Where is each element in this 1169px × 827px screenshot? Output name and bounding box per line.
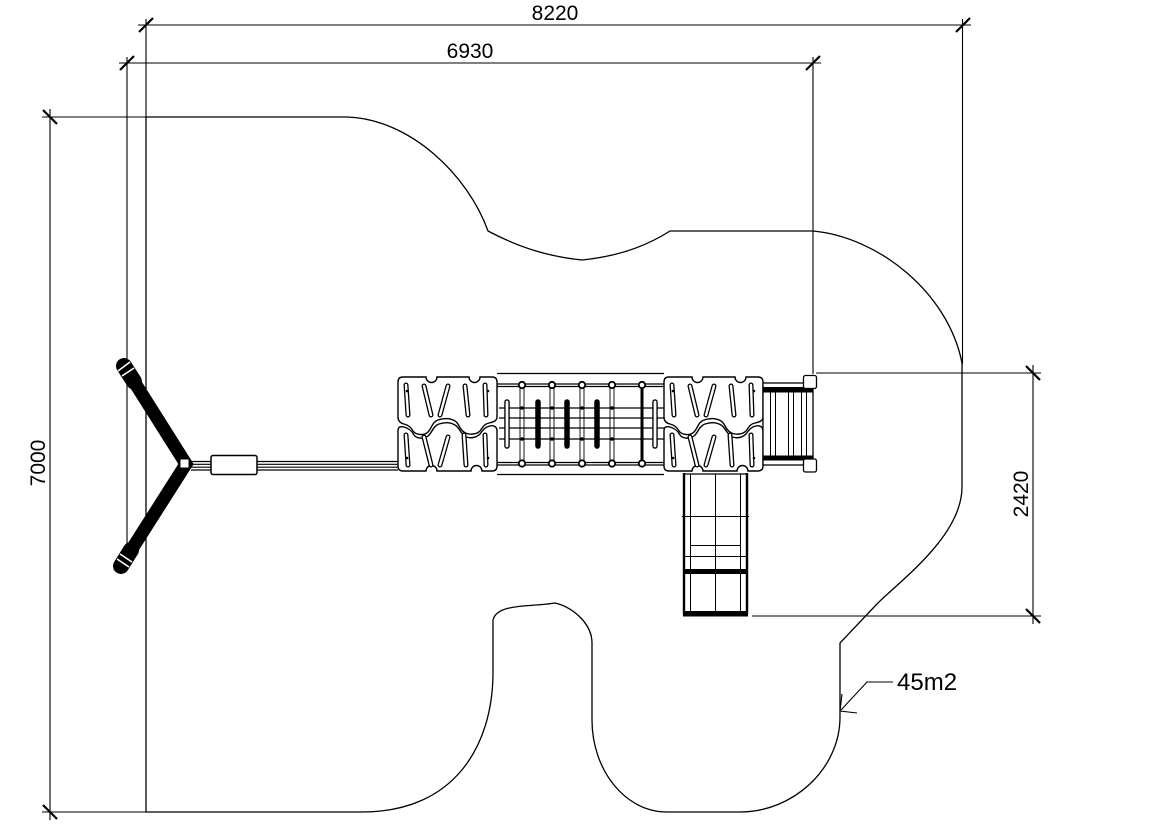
climbing-panel-unit-right (664, 377, 763, 471)
area-label: 45m2 (897, 669, 957, 696)
dimension-label-equipment-width: 6930 (447, 40, 494, 63)
dimension-label-overall-depth: 7000 (27, 440, 50, 487)
climbing-panel-unit-left (398, 377, 497, 471)
platform-deck (763, 376, 817, 473)
swing-beam (191, 456, 398, 475)
dimension-label-overall-width: 8220 (532, 2, 579, 25)
dimension-equipment-width: 6930 (119, 40, 821, 70)
swing-boom (117, 362, 189, 567)
leader-arrowhead-icon (840, 694, 857, 713)
playground-plan-svg: 8220 6930 7000 2420 45m2 (0, 0, 1169, 827)
dimension-slide-zone-depth: 2420 (1010, 365, 1040, 624)
plan-drawing-canvas: 8220 6930 7000 2420 45m2 (0, 0, 1169, 827)
deck-corner-tab (804, 376, 817, 389)
slide-crossbar (685, 569, 746, 574)
area-annotation: 45m2 (840, 669, 957, 713)
leader-line (841, 682, 893, 710)
playground-equipment (117, 362, 817, 617)
slide-end-bar (683, 611, 748, 617)
boom-apex-post (181, 460, 189, 468)
beam-sleeve (211, 456, 257, 475)
slide (682, 473, 749, 617)
extension-lines (42, 19, 1041, 812)
dimension-label-slide-zone-depth: 2420 (1010, 471, 1033, 518)
deck-corner-tab (804, 459, 817, 472)
dimension-overall-depth: 7000 (27, 109, 57, 820)
dimension-overall-width: 8220 (138, 2, 971, 32)
net-bridge (497, 374, 664, 475)
